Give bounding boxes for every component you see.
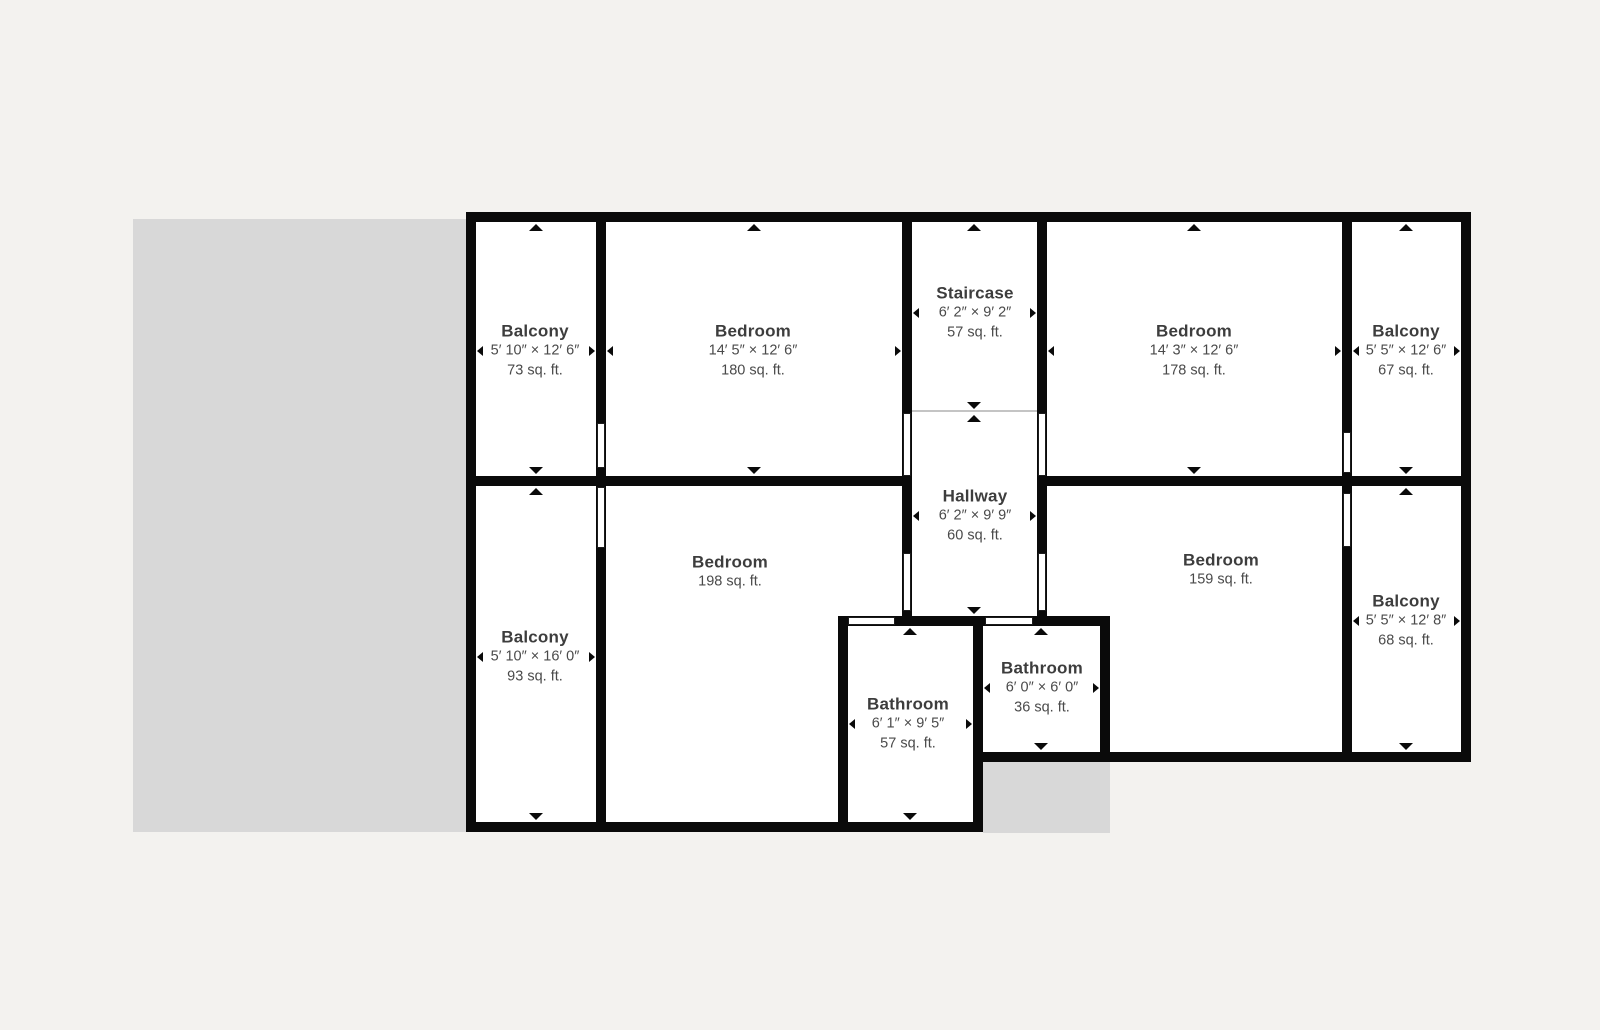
measure-arrow-left — [477, 652, 483, 662]
measure-arrow-down — [1399, 467, 1413, 474]
measure-arrow-left — [849, 719, 855, 729]
door-opening-hallway-top-left — [903, 413, 911, 476]
measure-arrow-right — [1030, 511, 1036, 521]
measure-arrow-up — [529, 488, 543, 495]
door-opening-hallway-bottom-left — [903, 553, 911, 611]
measure-arrow-left — [1048, 346, 1054, 356]
room-name: Bedroom — [1150, 322, 1239, 342]
door-opening-hallway-top-right — [1038, 413, 1046, 476]
measure-arrow-down — [1187, 467, 1201, 474]
room-label-bedroom-bottom-right: Bedroom 159 sq. ft. — [1183, 550, 1259, 590]
room-dimensions: 6′ 1″ × 9′ 5″ — [867, 715, 949, 735]
room-label-bathroom-right: Bathroom 6′ 0″ × 6′ 0″ 36 sq. ft. — [1001, 659, 1083, 718]
measure-arrow-up — [967, 415, 981, 422]
room-area: 60 sq. ft. — [939, 526, 1012, 546]
measure-arrow-down — [903, 813, 917, 820]
room-label-hallway: Hallway 6′ 2″ × 9′ 9″ 60 sq. ft. — [939, 487, 1012, 546]
room-name: Balcony — [1366, 592, 1447, 612]
wall-outer-left — [466, 212, 476, 832]
room-dimensions: 14′ 5″ × 12′ 6″ — [709, 342, 798, 362]
wall-bathroom-right — [1100, 616, 1110, 762]
wall-top — [466, 212, 1471, 222]
measure-arrow-left — [913, 308, 919, 318]
room-name: Bedroom — [709, 322, 798, 342]
measure-arrow-up — [1399, 224, 1413, 231]
measure-arrow-right — [1335, 346, 1341, 356]
room-label-staircase: Staircase 6′ 2″ × 9′ 2″ 57 sq. ft. — [936, 284, 1013, 343]
measure-arrow-down — [747, 467, 761, 474]
ground-shadow-left — [133, 219, 471, 832]
door-opening-balcony-top-right — [1343, 432, 1351, 473]
door-opening-hallway-bottom-right — [1038, 553, 1046, 611]
room-name: Bathroom — [1001, 659, 1083, 679]
measure-arrow-down — [529, 467, 543, 474]
room-area: 57 sq. ft. — [867, 734, 949, 754]
room-name: Bedroom — [1183, 550, 1259, 570]
room-area: 36 sq. ft. — [1001, 698, 1083, 718]
room-label-balcony-top-left: Balcony 5′ 10″ × 12′ 6″ 73 sq. ft. — [491, 322, 580, 381]
staircase-hallway-boundary — [912, 410, 1037, 412]
room-dimensions: 6′ 0″ × 6′ 0″ — [1001, 679, 1083, 699]
door-opening-bathroom-left — [848, 617, 895, 625]
room-name: Hallway — [939, 487, 1012, 507]
room-name: Balcony — [1366, 322, 1447, 342]
room-dimensions: 5′ 10″ × 16′ 0″ — [491, 648, 580, 668]
wall-row-divider-left — [466, 476, 912, 486]
room-area: 67 sq. ft. — [1366, 361, 1447, 381]
room-name: Balcony — [491, 322, 580, 342]
room-area: 73 sq. ft. — [491, 361, 580, 381]
floor-plan: Balcony 5′ 10″ × 12′ 6″ 73 sq. ft. Bedro… — [0, 0, 1600, 1030]
measure-arrow-right — [1093, 683, 1099, 693]
wall-bottom-right-block — [973, 752, 1471, 762]
room-name: Bathroom — [867, 695, 949, 715]
measure-arrow-left — [477, 346, 483, 356]
measure-arrow-left — [1353, 616, 1359, 626]
room-label-balcony-top-right: Balcony 5′ 5″ × 12′ 6″ 67 sq. ft. — [1366, 322, 1447, 381]
room-area: 159 sq. ft. — [1183, 570, 1259, 590]
measure-arrow-right — [966, 719, 972, 729]
measure-arrow-left — [913, 511, 919, 521]
room-dimensions: 5′ 5″ × 12′ 8″ — [1366, 612, 1447, 632]
room-label-bedroom-top-right: Bedroom 14′ 3″ × 12′ 6″ 178 sq. ft. — [1150, 322, 1239, 381]
room-area: 180 sq. ft. — [709, 361, 798, 381]
room-area: 57 sq. ft. — [936, 323, 1013, 343]
room-label-balcony-bottom-right: Balcony 5′ 5″ × 12′ 8″ 68 sq. ft. — [1366, 592, 1447, 651]
door-opening-balcony-bottom-right — [1343, 493, 1351, 547]
door-opening-balcony-bottom-left — [597, 487, 605, 548]
measure-arrow-up — [747, 224, 761, 231]
wall-bathroom-divider — [973, 616, 983, 832]
room-area: 198 sq. ft. — [692, 572, 768, 592]
measure-arrow-down — [967, 402, 981, 409]
room-area: 68 sq. ft. — [1366, 631, 1447, 651]
room-label-bedroom-top-left: Bedroom 14′ 5″ × 12′ 6″ 180 sq. ft. — [709, 322, 798, 381]
measure-arrow-down — [1034, 743, 1048, 750]
room-name: Bedroom — [692, 552, 768, 572]
wall-row-divider-right — [1037, 476, 1471, 486]
wall-bathroom-left — [838, 616, 848, 832]
measure-arrow-left — [984, 683, 990, 693]
room-dimensions: 5′ 5″ × 12′ 6″ — [1366, 342, 1447, 362]
measure-arrow-up — [903, 628, 917, 635]
measure-arrow-left — [1353, 346, 1359, 356]
measure-arrow-up — [1399, 488, 1413, 495]
measure-arrow-right — [589, 346, 595, 356]
measure-arrow-right — [1454, 346, 1460, 356]
measure-arrow-right — [895, 346, 901, 356]
wall-bottom-left-block — [466, 822, 983, 832]
room-name: Balcony — [491, 628, 580, 648]
room-label-balcony-bottom-left: Balcony 5′ 10″ × 16′ 0″ 93 sq. ft. — [491, 628, 580, 687]
floor-area-top-row — [466, 212, 1471, 486]
measure-arrow-right — [589, 652, 595, 662]
measure-arrow-down — [1399, 743, 1413, 750]
ground-shadow-notch — [983, 762, 1110, 833]
measure-arrow-right — [1030, 308, 1036, 318]
measure-arrow-down — [529, 813, 543, 820]
measure-arrow-up — [529, 224, 543, 231]
measure-arrow-down — [967, 607, 981, 614]
room-label-bedroom-bottom-left: Bedroom 198 sq. ft. — [692, 552, 768, 592]
measure-arrow-right — [1454, 616, 1460, 626]
measure-arrow-up — [1034, 628, 1048, 635]
wall-outer-right — [1461, 212, 1471, 762]
room-dimensions: 6′ 2″ × 9′ 9″ — [939, 507, 1012, 527]
door-opening-balcony-top-left — [597, 423, 605, 468]
room-area: 93 sq. ft. — [491, 667, 580, 687]
room-label-bathroom-left: Bathroom 6′ 1″ × 9′ 5″ 57 sq. ft. — [867, 695, 949, 754]
room-dimensions: 6′ 2″ × 9′ 2″ — [936, 304, 1013, 324]
room-dimensions: 14′ 3″ × 12′ 6″ — [1150, 342, 1239, 362]
measure-arrow-up — [1187, 224, 1201, 231]
wall-balcony-divider-right — [1342, 212, 1352, 762]
measure-arrow-up — [967, 224, 981, 231]
measure-arrow-left — [607, 346, 613, 356]
room-name: Staircase — [936, 284, 1013, 304]
room-area: 178 sq. ft. — [1150, 361, 1239, 381]
room-dimensions: 5′ 10″ × 12′ 6″ — [491, 342, 580, 362]
door-opening-bathroom-right — [985, 617, 1033, 625]
